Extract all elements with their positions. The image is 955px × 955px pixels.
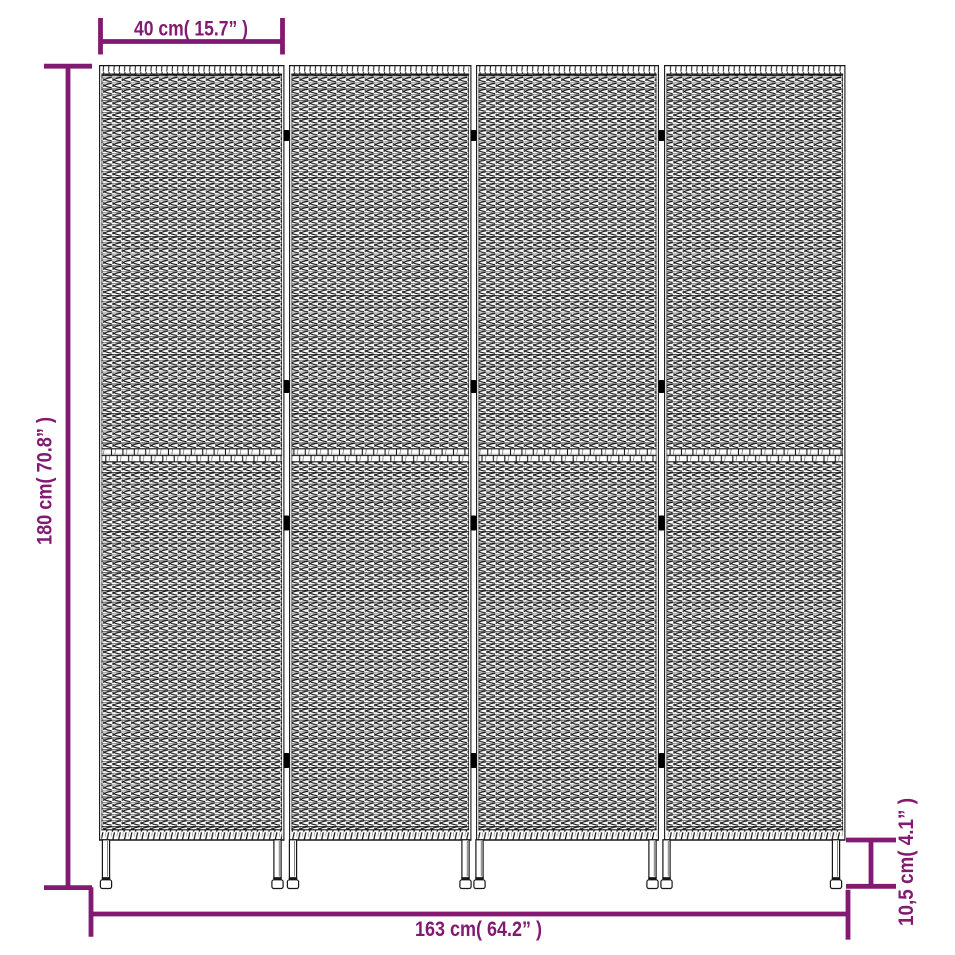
svg-text:10,5 cm( 4.1” ): 10,5 cm( 4.1” ) (894, 798, 918, 926)
svg-text:180 cm( 70.8” ): 180 cm( 70.8” ) (33, 417, 57, 545)
svg-text:40 cm( 15.7” ): 40 cm( 15.7” ) (134, 17, 248, 41)
svg-text:163 cm( 64.2” ): 163 cm( 64.2” ) (415, 917, 542, 941)
